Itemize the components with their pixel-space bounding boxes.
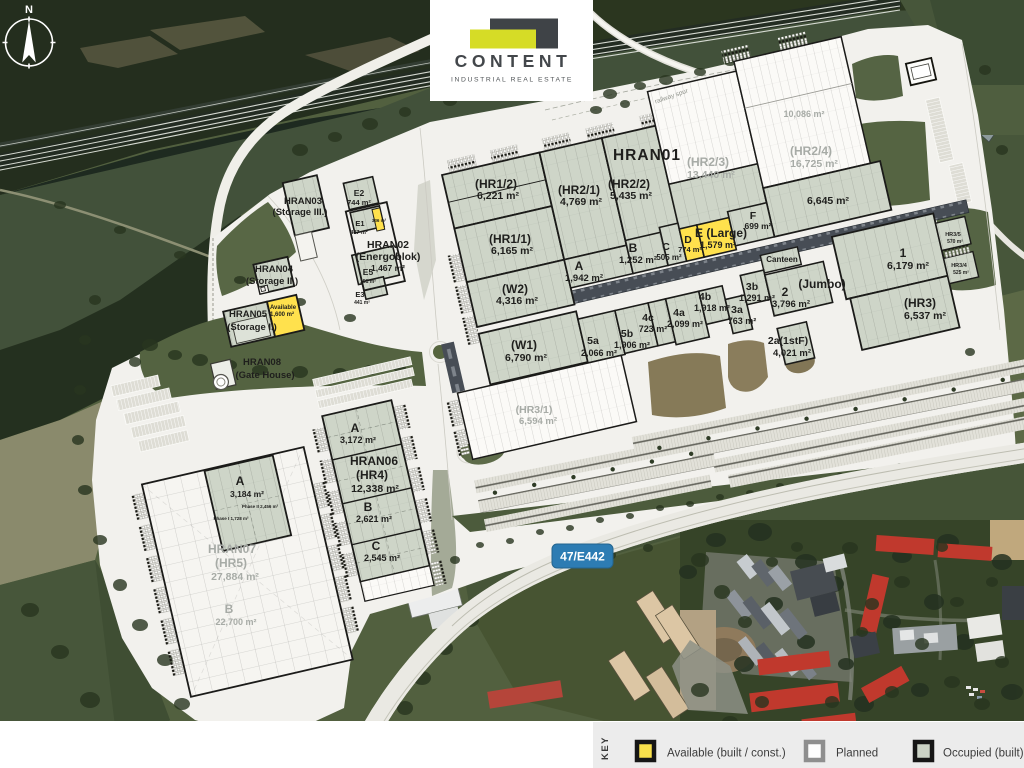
svg-text:774 m²: 774 m² xyxy=(678,245,702,254)
svg-text:12,338 m²: 12,338 m² xyxy=(351,483,399,495)
svg-text:6,179 m²: 6,179 m² xyxy=(887,260,930,272)
svg-text:3,172 m²: 3,172 m² xyxy=(340,435,376,445)
svg-text:4,316 m²: 4,316 m² xyxy=(496,295,539,307)
svg-text:A: A xyxy=(575,259,584,273)
svg-text:HRAN05: HRAN05 xyxy=(229,309,268,320)
svg-text:CONTENT: CONTENT xyxy=(455,51,572,71)
svg-text:1,579 m²: 1,579 m² xyxy=(700,240,736,250)
svg-text:HR3/5: HR3/5 xyxy=(945,232,961,238)
svg-text:763 m²: 763 m² xyxy=(728,316,757,326)
svg-text:1,942 m²: 1,942 m² xyxy=(565,273,603,284)
svg-text:4,769 m²: 4,769 m² xyxy=(560,196,603,208)
svg-text:744 m²: 744 m² xyxy=(347,198,371,207)
svg-text:HRAN02: HRAN02 xyxy=(367,239,409,251)
svg-text:E3: E3 xyxy=(355,290,364,299)
svg-text:4c: 4c xyxy=(642,312,654,324)
svg-text:22,700 m²: 22,700 m² xyxy=(215,617,256,627)
svg-text:(Storage III.): (Storage III.) xyxy=(273,207,328,218)
svg-text:1,291 m²: 1,291 m² xyxy=(739,293,775,303)
svg-text:E1: E1 xyxy=(355,219,364,228)
svg-text:487 m²: 487 m² xyxy=(350,229,368,236)
svg-text:6,594 m²: 6,594 m² xyxy=(519,416,557,427)
svg-text:Planned: Planned xyxy=(836,748,878,760)
svg-text:4,021 m²: 4,021 m² xyxy=(773,348,811,359)
svg-text:27,884 m²: 27,884 m² xyxy=(211,571,259,583)
svg-text:Phase I 1,728 m²: Phase I 1,728 m² xyxy=(213,516,249,521)
svg-text:1,906 m²: 1,906 m² xyxy=(614,340,650,350)
svg-text:(HR2/2): (HR2/2) xyxy=(608,177,650,191)
svg-text:Phase II 2,456 m²: Phase II 2,456 m² xyxy=(242,504,279,509)
svg-text:3,796 m²: 3,796 m² xyxy=(772,299,810,310)
svg-text:KEY: KEY xyxy=(600,736,611,760)
svg-text:B: B xyxy=(364,500,373,514)
svg-text:B: B xyxy=(225,602,234,616)
svg-text:A: A xyxy=(351,421,360,435)
svg-text:5a: 5a xyxy=(587,335,599,347)
svg-text:INDUSTRIAL REAL ESTATE: INDUSTRIAL REAL ESTATE xyxy=(451,77,573,84)
svg-text:C: C xyxy=(662,241,670,253)
svg-text:505 m²: 505 m² xyxy=(656,253,682,262)
svg-text:2: 2 xyxy=(782,285,789,299)
svg-text:2,621 m²: 2,621 m² xyxy=(356,514,392,524)
svg-text:Available: Available xyxy=(270,305,297,311)
svg-text:B: B xyxy=(629,241,638,255)
svg-text:(HR5): (HR5) xyxy=(215,556,247,570)
svg-text:(HR3): (HR3) xyxy=(904,296,936,310)
svg-text:C: C xyxy=(372,539,381,553)
svg-text:1,918 m²: 1,918 m² xyxy=(694,303,730,313)
svg-text:HRAN04: HRAN04 xyxy=(255,264,294,275)
svg-text:6,221 m²: 6,221 m² xyxy=(477,190,520,202)
svg-text:(Storage II.): (Storage II.) xyxy=(246,276,298,287)
svg-text:N: N xyxy=(25,4,33,16)
svg-text:3a: 3a xyxy=(731,304,743,316)
svg-text:4a: 4a xyxy=(673,307,685,319)
svg-text:(HR2/3): (HR2/3) xyxy=(687,155,729,169)
svg-text:2,066 m²: 2,066 m² xyxy=(581,348,617,358)
svg-text:(HR2/1): (HR2/1) xyxy=(558,183,600,197)
svg-text:(HR3/1): (HR3/1) xyxy=(516,404,553,416)
svg-text:(Storage I.): (Storage I.) xyxy=(227,322,277,333)
svg-text:Canteen: Canteen xyxy=(766,255,798,264)
svg-text:HRAN06: HRAN06 xyxy=(350,454,398,468)
svg-text:151 m²: 151 m² xyxy=(360,279,376,285)
svg-text:6,645 m²: 6,645 m² xyxy=(807,195,850,207)
svg-text:Occupied (built): Occupied (built) xyxy=(943,748,1024,760)
svg-text:(HR1/1): (HR1/1) xyxy=(489,232,531,246)
svg-text:13,440 m²: 13,440 m² xyxy=(687,169,735,181)
svg-text:HRAN07: HRAN07 xyxy=(208,542,256,556)
svg-text:HRAN03: HRAN03 xyxy=(284,196,322,207)
svg-text:723 m²: 723 m² xyxy=(639,324,668,334)
svg-text:5,435 m²: 5,435 m² xyxy=(610,190,653,202)
svg-text:HRAN08: HRAN08 xyxy=(243,357,281,368)
svg-text:Available (built / const.): Available (built / const.) xyxy=(667,748,786,760)
svg-text:5b: 5b xyxy=(621,328,633,340)
svg-text:E5: E5 xyxy=(363,267,374,277)
svg-text:16,725 m²: 16,725 m² xyxy=(790,158,838,170)
svg-text:(HR2/4): (HR2/4) xyxy=(790,144,832,158)
svg-text:441 m²: 441 m² xyxy=(354,300,370,306)
svg-text:E (Large): E (Large) xyxy=(695,226,747,240)
svg-text:(Jumbo): (Jumbo) xyxy=(798,277,845,291)
svg-text:HRAN01: HRAN01 xyxy=(613,147,681,164)
svg-text:3,184 m²: 3,184 m² xyxy=(230,489,264,499)
svg-text:1: 1 xyxy=(900,246,907,260)
svg-text:336 m²: 336 m² xyxy=(372,218,387,223)
svg-text:E2: E2 xyxy=(354,188,365,198)
svg-text:2,545 m²: 2,545 m² xyxy=(364,553,400,563)
svg-text:3b: 3b xyxy=(746,281,758,293)
svg-text:(Energoblok): (Energoblok) xyxy=(356,251,421,263)
svg-text:47/E442: 47/E442 xyxy=(560,550,605,564)
svg-text:(W1): (W1) xyxy=(511,338,537,352)
svg-text:(HR4): (HR4) xyxy=(356,468,388,482)
svg-text:(W2): (W2) xyxy=(502,282,528,296)
svg-text:6,165 m²: 6,165 m² xyxy=(491,245,534,257)
svg-text:2,099 m²: 2,099 m² xyxy=(667,319,703,329)
svg-text:(Gate House): (Gate House) xyxy=(235,370,294,381)
svg-text:525 m²: 525 m² xyxy=(953,270,969,276)
svg-text:HR3/4: HR3/4 xyxy=(951,263,968,269)
svg-text:6,537 m²: 6,537 m² xyxy=(904,310,947,322)
svg-text:A: A xyxy=(236,474,245,488)
svg-text:1,600 m²: 1,600 m² xyxy=(270,311,294,318)
svg-text:(HR1/2): (HR1/2) xyxy=(475,177,517,191)
svg-text:699 m²: 699 m² xyxy=(745,221,772,231)
svg-text:10,086 m²: 10,086 m² xyxy=(783,109,824,119)
svg-text:2a(1stF): 2a(1stF) xyxy=(768,335,808,347)
svg-text:1,252 m²: 1,252 m² xyxy=(619,255,657,266)
svg-text:6,790 m²: 6,790 m² xyxy=(505,352,548,364)
svg-text:570 m²: 570 m² xyxy=(947,239,963,245)
svg-text:4b: 4b xyxy=(699,291,711,303)
svg-text:1,467 m²: 1,467 m² xyxy=(371,263,405,273)
